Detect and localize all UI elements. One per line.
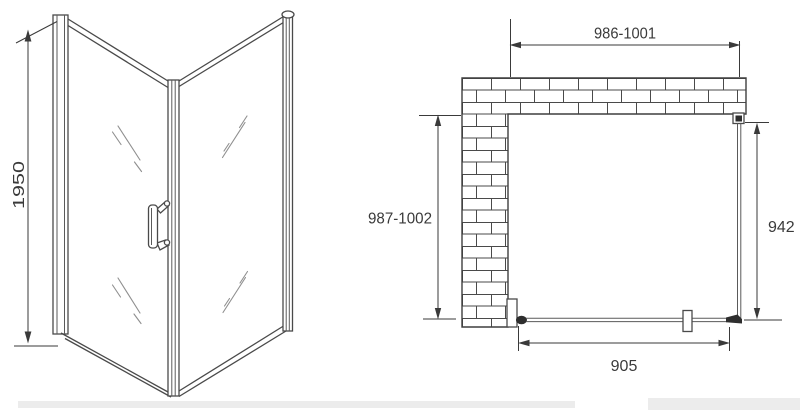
side-panel-plan — [733, 113, 744, 318]
side-panel-top-rail — [179, 17, 285, 87]
arrow-down — [435, 308, 441, 320]
door-upper-shine — [113, 126, 142, 172]
arrow-up — [435, 115, 441, 127]
opening-width-dimension: 986-1001 — [510, 19, 741, 77]
side-panel-dimension-label: 942 — [768, 219, 795, 236]
door-handle — [149, 201, 170, 250]
door-wall-profile — [507, 299, 517, 327]
scan-artifacts — [18, 398, 800, 410]
artifact-strip — [648, 398, 800, 410]
door-handle-plan — [683, 311, 692, 332]
panel-upper-shine — [223, 116, 248, 158]
arrow-left — [510, 42, 522, 48]
height-dimension-label: 1950 — [11, 161, 28, 209]
depth-dimension: 987-1002 — [368, 115, 461, 320]
right-profile-cap — [282, 11, 294, 18]
door-bottom-rail — [61, 333, 171, 397]
corner-post — [168, 80, 179, 396]
handle-grip — [149, 205, 158, 248]
door-hinge — [516, 316, 527, 325]
side-panel-bottom-rail — [179, 326, 286, 397]
door-plan — [507, 299, 742, 332]
arrow-up — [754, 123, 760, 134]
shower-enclosure-drawing: 1950 986-1001 — [0, 0, 800, 411]
isometric-view: 1950 — [11, 11, 294, 397]
opening-width-label: 986-1001 — [594, 26, 656, 43]
plan-view: 986-1001 987-1002 942 905 — [368, 19, 795, 375]
arrow-down — [25, 332, 32, 344]
artifact-strip — [18, 401, 575, 408]
side-panel-bracket — [736, 116, 743, 122]
door-width-dimension: 905 — [518, 326, 730, 375]
right-profile-body — [283, 14, 293, 331]
glass-shine-marks — [113, 116, 248, 324]
height-dimension: 1950 — [11, 22, 58, 347]
door-closer-strip — [726, 315, 742, 324]
door-width-label: 905 — [611, 358, 638, 375]
panel-lower-shine — [223, 272, 248, 313]
left-wall-profile — [53, 15, 68, 334]
brick-wall — [462, 78, 746, 327]
technical-drawing-page: 1950 986-1001 — [0, 0, 800, 411]
arrow-down — [754, 308, 760, 319]
corner-post-body — [168, 80, 179, 396]
door-top-rail — [68, 19, 168, 88]
left-profile-body — [53, 15, 68, 334]
side-panel-dimension: 942 — [744, 123, 795, 321]
right-wall-profile — [282, 11, 294, 331]
extension-line — [16, 22, 57, 44]
arrow-right — [719, 340, 731, 346]
depth-dimension-label: 987-1002 — [368, 211, 432, 228]
arrow-right — [729, 42, 741, 48]
door-lower-shine — [113, 278, 142, 324]
arrow-left — [518, 340, 530, 346]
